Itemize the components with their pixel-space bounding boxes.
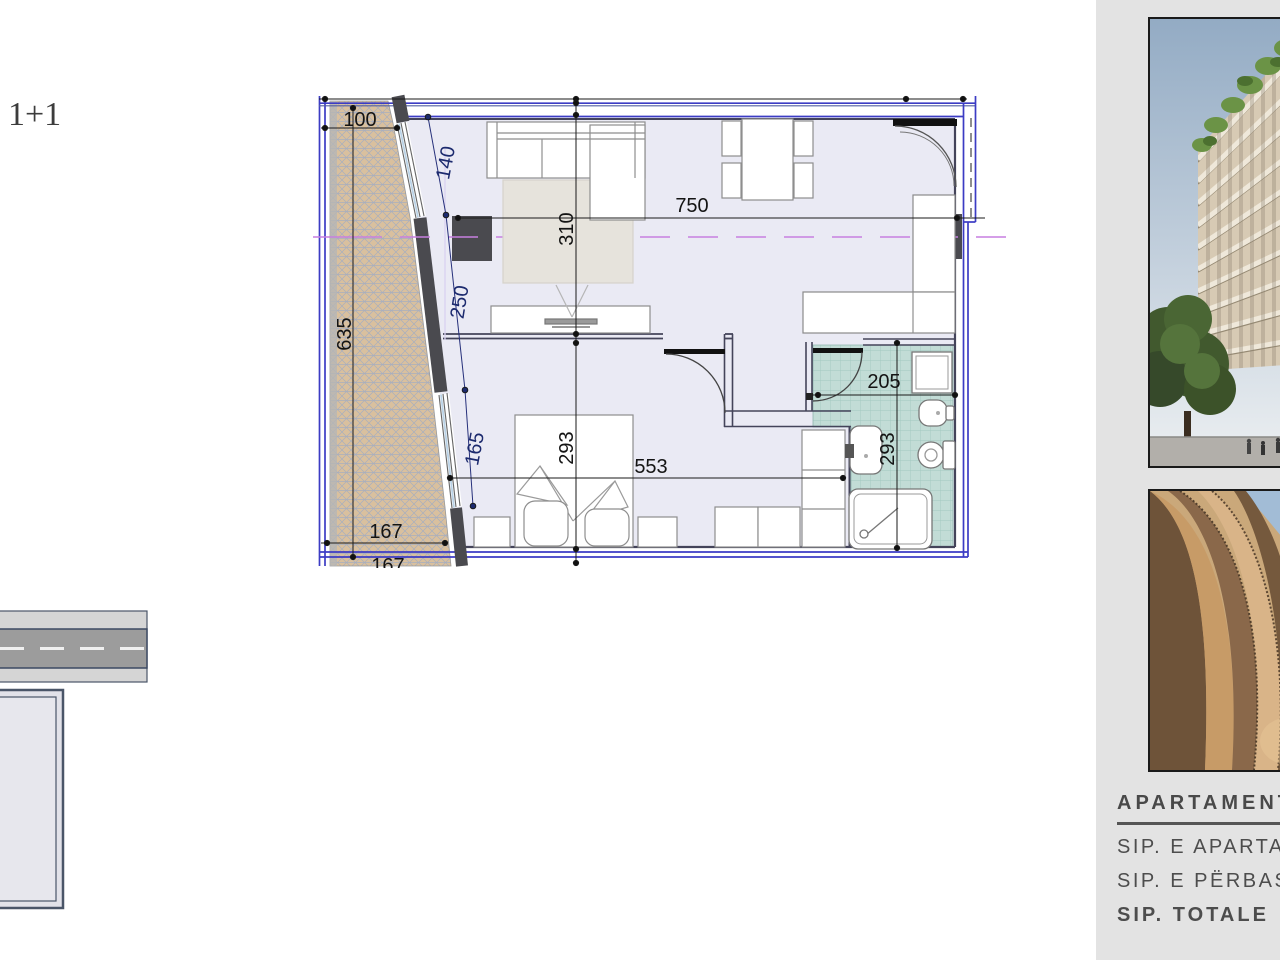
dim-label-293-bedroom: 293 bbox=[556, 431, 578, 464]
facade-render-illustration bbox=[1150, 491, 1280, 770]
washing-machine bbox=[912, 352, 952, 393]
label-area-common: SIP. E PËRBASH bbox=[1117, 871, 1280, 892]
dim-label-553: 553 bbox=[634, 456, 667, 478]
toilet bbox=[918, 441, 955, 469]
dim-label-100: 100 bbox=[343, 109, 376, 131]
pillow-left bbox=[524, 501, 568, 546]
shower bbox=[849, 489, 932, 549]
wardrobe bbox=[802, 430, 845, 547]
label-area-apartment: SIP. E APARTAM bbox=[1117, 837, 1280, 858]
apartment-info-block: APARTAMENT SIP. E APARTAM SIP. E PËRBASH… bbox=[1117, 792, 1280, 939]
info-sidebar: APARTAMENT SIP. E APARTAM SIP. E PËRBASH… bbox=[1096, 0, 1280, 960]
pillow-right bbox=[585, 509, 629, 546]
drawing-sheet: 1+1 bbox=[0, 0, 1280, 960]
dim-label-205: 205 bbox=[867, 371, 900, 393]
bedroom-door-leaf bbox=[664, 349, 725, 354]
closet-module bbox=[715, 507, 758, 547]
tv bbox=[545, 319, 597, 324]
dim-label-293-bathroom: 293 bbox=[877, 432, 899, 465]
label-area-total: SIP. TOTALE bbox=[1117, 905, 1280, 926]
nightstand-right bbox=[638, 517, 677, 547]
dim-label-750: 750 bbox=[675, 195, 708, 217]
dim-label-635: 635 bbox=[334, 317, 356, 350]
site-building-outline bbox=[0, 690, 63, 908]
site-road bbox=[0, 611, 147, 682]
render-photo-building bbox=[1148, 17, 1280, 468]
closet-module bbox=[758, 507, 800, 547]
bathroom-door-leaf bbox=[813, 348, 863, 353]
viewport-crop-mask bbox=[298, 568, 1010, 618]
nightstand-left bbox=[474, 517, 510, 547]
column-living bbox=[452, 216, 492, 261]
building-render-illustration bbox=[1150, 19, 1280, 466]
street-level bbox=[1150, 437, 1280, 466]
apartment-info-heading: APARTAMENT bbox=[1117, 792, 1280, 825]
dim-label-310: 310 bbox=[556, 212, 578, 245]
render-photo-facade bbox=[1148, 489, 1280, 772]
entrance-door-leaf bbox=[893, 119, 957, 126]
dim-label-167: 167 bbox=[369, 521, 402, 543]
floor-plan-drawing: 100 140 750 310 250 635 165 293 553 167 … bbox=[0, 0, 1280, 960]
